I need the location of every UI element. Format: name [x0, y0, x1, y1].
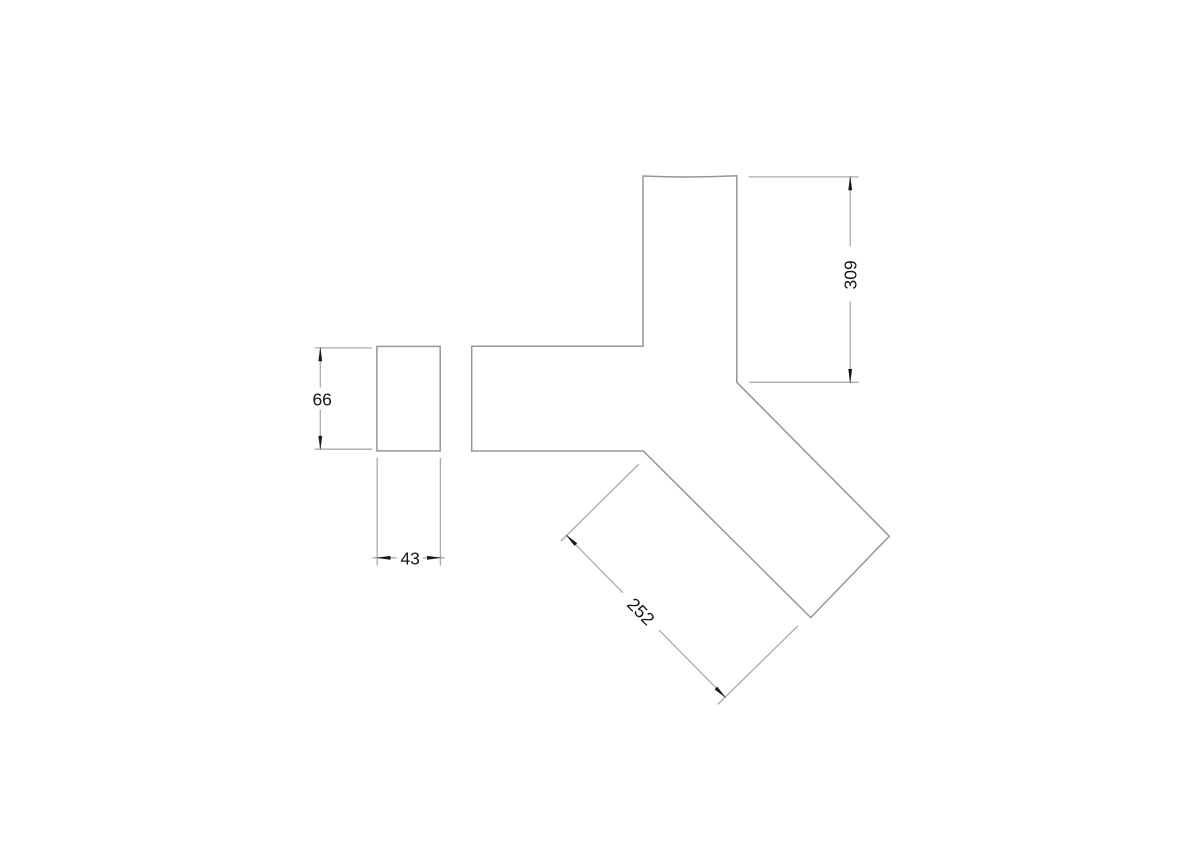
svg-text:43: 43	[400, 549, 419, 569]
svg-text:66: 66	[312, 390, 331, 410]
svg-text:309: 309	[840, 260, 860, 289]
